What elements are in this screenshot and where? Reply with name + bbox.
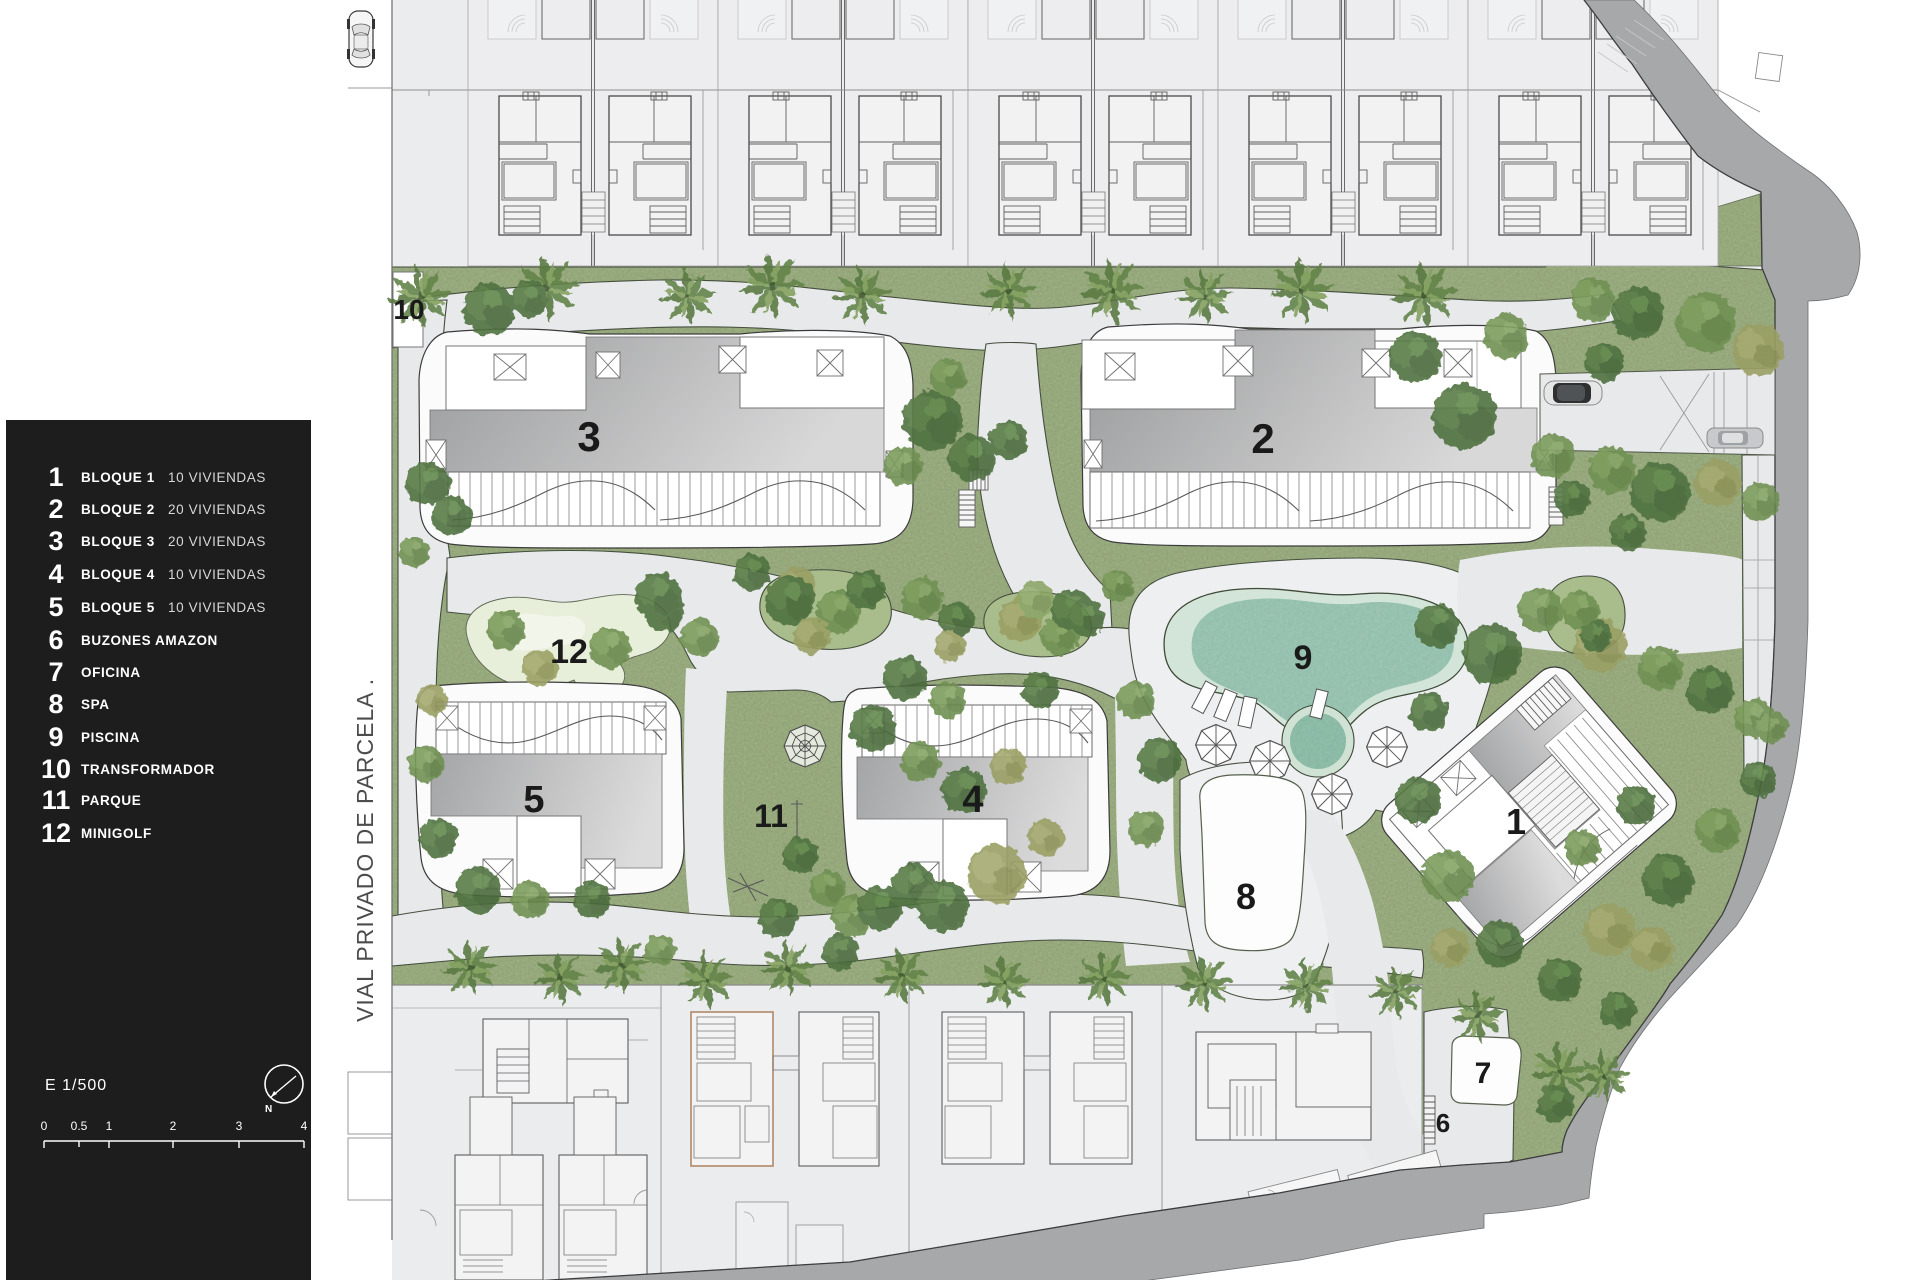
svg-text:4: 4 <box>301 1119 308 1133</box>
svg-text:10: 10 <box>41 754 71 784</box>
svg-text:9: 9 <box>48 722 63 752</box>
svg-text:10 VIVIENDAS: 10 VIVIENDAS <box>168 470 266 485</box>
svg-text:1: 1 <box>48 462 63 492</box>
svg-text:BLOQUE 3: BLOQUE 3 <box>81 534 155 549</box>
svg-text:TRANSFORMADOR: TRANSFORMADOR <box>81 762 215 777</box>
svg-text:9: 9 <box>1294 639 1313 677</box>
svg-text:11: 11 <box>754 798 788 834</box>
svg-text:7: 7 <box>48 657 63 687</box>
svg-text:BLOQUE 4: BLOQUE 4 <box>81 567 155 582</box>
svg-text:BLOQUE 2: BLOQUE 2 <box>81 502 155 517</box>
svg-text:SPA: SPA <box>81 697 110 712</box>
svg-text:5: 5 <box>48 592 63 622</box>
svg-text:6: 6 <box>48 625 63 655</box>
svg-text:10 VIVIENDAS: 10 VIVIENDAS <box>168 600 266 615</box>
svg-text:BLOQUE 1: BLOQUE 1 <box>81 470 155 485</box>
svg-text:11: 11 <box>42 785 71 815</box>
svg-text:PISCINA: PISCINA <box>81 730 140 745</box>
svg-text:0.5: 0.5 <box>71 1119 88 1133</box>
svg-text:6: 6 <box>1436 1108 1450 1138</box>
svg-text:8: 8 <box>48 689 63 719</box>
svg-text:2: 2 <box>170 1119 177 1133</box>
svg-text:2: 2 <box>1251 415 1274 462</box>
svg-text:20 VIVIENDAS: 20 VIVIENDAS <box>168 502 266 517</box>
svg-text:MINIGOLF: MINIGOLF <box>81 826 152 841</box>
svg-text:10 VIVIENDAS: 10 VIVIENDAS <box>168 567 266 582</box>
svg-text:0: 0 <box>41 1119 48 1133</box>
svg-text:OFICINA: OFICINA <box>81 665 141 680</box>
svg-text:3: 3 <box>577 413 600 460</box>
svg-text:10: 10 <box>393 294 424 325</box>
svg-text:8: 8 <box>1236 876 1256 917</box>
svg-text:5: 5 <box>523 779 544 821</box>
svg-text:4: 4 <box>962 779 983 821</box>
svg-text:N: N <box>265 1104 272 1115</box>
svg-text:3: 3 <box>48 526 63 556</box>
svg-text:PARQUE: PARQUE <box>81 793 141 808</box>
svg-text:2: 2 <box>48 494 63 524</box>
svg-text:7: 7 <box>1475 1057 1492 1090</box>
svg-text:BLOQUE 5: BLOQUE 5 <box>81 600 155 615</box>
svg-text:1: 1 <box>106 1119 113 1133</box>
svg-text:12: 12 <box>41 818 71 848</box>
svg-text:4: 4 <box>48 559 63 589</box>
svg-text:3: 3 <box>236 1119 243 1133</box>
svg-text:BUZONES AMAZON: BUZONES AMAZON <box>81 633 218 648</box>
svg-text:12: 12 <box>550 633 588 671</box>
svg-text:VIAL PRIVADO DE PARCELA .: VIAL PRIVADO DE PARCELA . <box>352 678 378 1022</box>
svg-text:E 1/500: E 1/500 <box>45 1077 107 1094</box>
svg-text:20 VIVIENDAS: 20 VIVIENDAS <box>168 534 266 549</box>
svg-text:1: 1 <box>1506 801 1526 842</box>
